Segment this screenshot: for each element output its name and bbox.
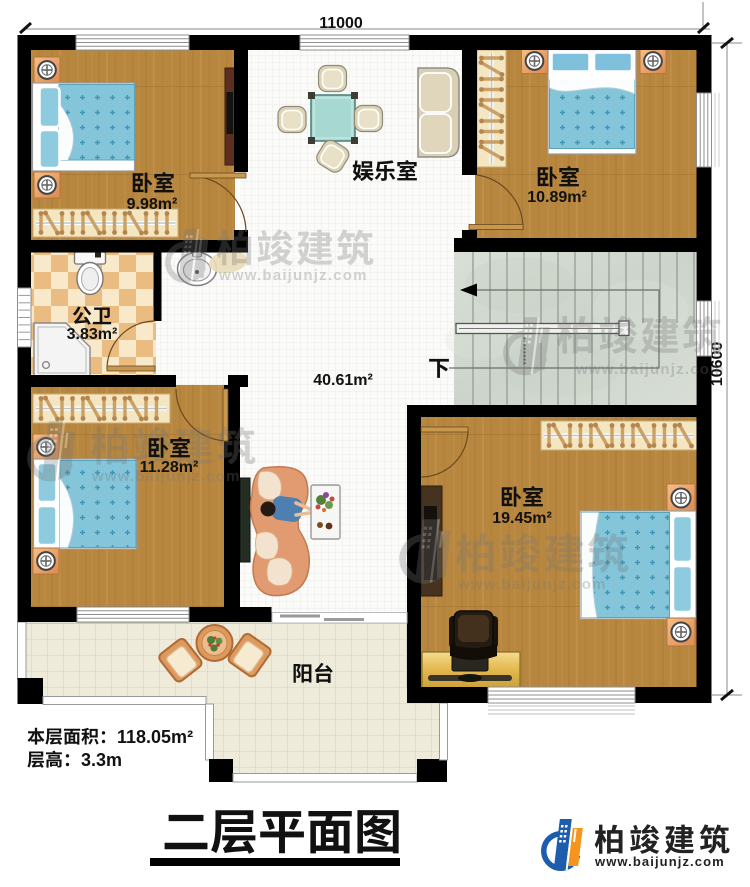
svg-text:www.baijunjz.com: www.baijunjz.com [218,267,368,284]
svg-text:11000: 11000 [319,15,363,32]
svg-text:118.05m²: 118.05m² [117,727,193,747]
svg-text:19.45m²: 19.45m² [492,510,552,527]
svg-text:3.3m: 3.3m [81,750,122,770]
svg-text:11.28m²: 11.28m² [140,459,199,476]
svg-text:40.61m²: 40.61m² [313,372,373,389]
svg-text:3.83m²: 3.83m² [67,326,118,343]
svg-text:www.baijunjz.com: www.baijunjz.com [575,361,725,378]
svg-text:www.baijunjz.com: www.baijunjz.com [594,854,725,869]
svg-text:www.baijunjz.com: www.baijunjz.com [457,576,607,593]
svg-text:10.89m²: 10.89m² [527,189,587,206]
svg-text:9.98m²: 9.98m² [127,196,178,213]
